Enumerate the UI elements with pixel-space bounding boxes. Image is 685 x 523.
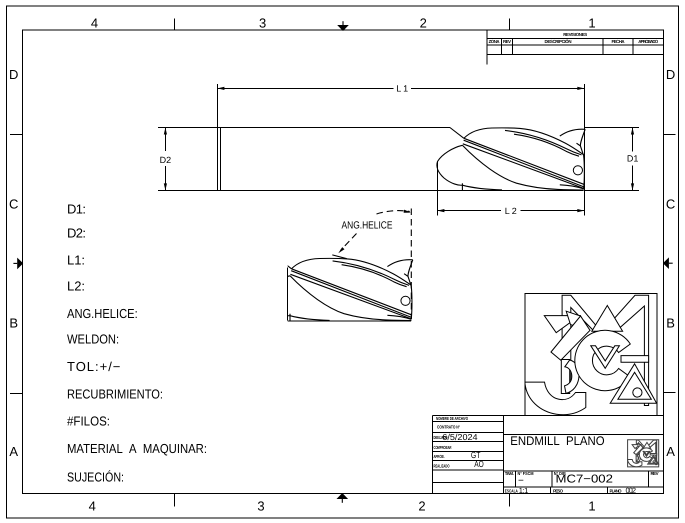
svg-text:FECHA: FECHA — [612, 39, 626, 44]
svg-text:WELDON:: WELDON: — [67, 332, 119, 347]
svg-text:D1: D1 — [627, 154, 639, 164]
svg-text:AO: AO — [474, 459, 484, 469]
svg-text:D: D — [666, 67, 675, 82]
svg-text:APROBADO: APROBADO — [638, 39, 659, 44]
svg-text:ZONA: ZONA — [489, 39, 501, 44]
svg-text:B: B — [666, 315, 675, 330]
svg-text:4: 4 — [91, 15, 98, 30]
svg-text:2: 2 — [418, 499, 425, 514]
svg-text:REVISIONES: REVISIONES — [563, 32, 587, 37]
svg-text:#FILOS:: #FILOS: — [67, 414, 110, 429]
svg-text:1: 1 — [588, 499, 595, 514]
svg-text:D: D — [9, 67, 18, 82]
svg-text:SUJECIÓN:: SUJECIÓN: — [67, 470, 124, 485]
svg-text:D2:: D2: — [67, 226, 86, 241]
svg-text:1:1: 1:1 — [519, 486, 529, 495]
svg-text:002: 002 — [626, 486, 637, 495]
svg-text:D2: D2 — [160, 155, 172, 165]
svg-text:ESCALA: ESCALA — [505, 488, 519, 493]
svg-text:COMPROBAR: COMPROBAR — [434, 445, 453, 450]
svg-text:CONTRATO N°: CONTRATO N° — [437, 425, 460, 430]
svg-text:REV: REV — [651, 471, 659, 476]
svg-text:2: 2 — [420, 15, 427, 30]
svg-text:B: B — [9, 315, 18, 330]
svg-text:A: A — [666, 444, 675, 459]
svg-text:MATERIAL A MAQUINAR:: MATERIAL A MAQUINAR: — [67, 441, 207, 456]
svg-text:L2:: L2: — [67, 279, 85, 294]
svg-text:A: A — [9, 444, 18, 459]
svg-text:NOMBRE DE ARCHIVO: NOMBRE DE ARCHIVO — [436, 416, 468, 421]
svg-text:L1:: L1: — [67, 253, 85, 268]
svg-text:REALIZADO: REALIZADO — [434, 463, 450, 468]
svg-text:−: − — [518, 476, 524, 487]
svg-text:L2: L2 — [505, 206, 517, 216]
svg-text:L1: L1 — [396, 84, 408, 94]
svg-text:ENDMILL PLANO: ENDMILL PLANO — [510, 434, 605, 448]
svg-text:APROB.: APROB. — [434, 454, 445, 459]
svg-text:D1:: D1: — [67, 202, 86, 217]
svg-text:C: C — [9, 196, 18, 211]
svg-text:TOL:+/−: TOL:+/− — [67, 359, 120, 374]
svg-text:RECUBRIMIENTO:: RECUBRIMIENTO: — [67, 387, 163, 402]
svg-text:PESO: PESO — [553, 488, 564, 493]
svg-text:3: 3 — [259, 15, 266, 30]
svg-text:TAM.: TAM. — [505, 471, 514, 476]
svg-text:DESCRIPCIÓN: DESCRIPCIÓN — [545, 39, 572, 44]
svg-text:3: 3 — [257, 499, 264, 514]
svg-text:1: 1 — [588, 15, 595, 30]
svg-text:ANG.HELICE: ANG.HELICE — [342, 220, 393, 231]
svg-text:C: C — [666, 196, 675, 211]
svg-text:MC7−002: MC7−002 — [556, 473, 613, 485]
svg-text:4: 4 — [89, 499, 96, 514]
svg-text:ANG.HELICE:: ANG.HELICE: — [67, 306, 138, 321]
svg-text:PLANO: PLANO — [610, 488, 623, 493]
svg-text:REV: REV — [503, 39, 511, 44]
svg-text:6/5/2024: 6/5/2024 — [442, 432, 478, 442]
